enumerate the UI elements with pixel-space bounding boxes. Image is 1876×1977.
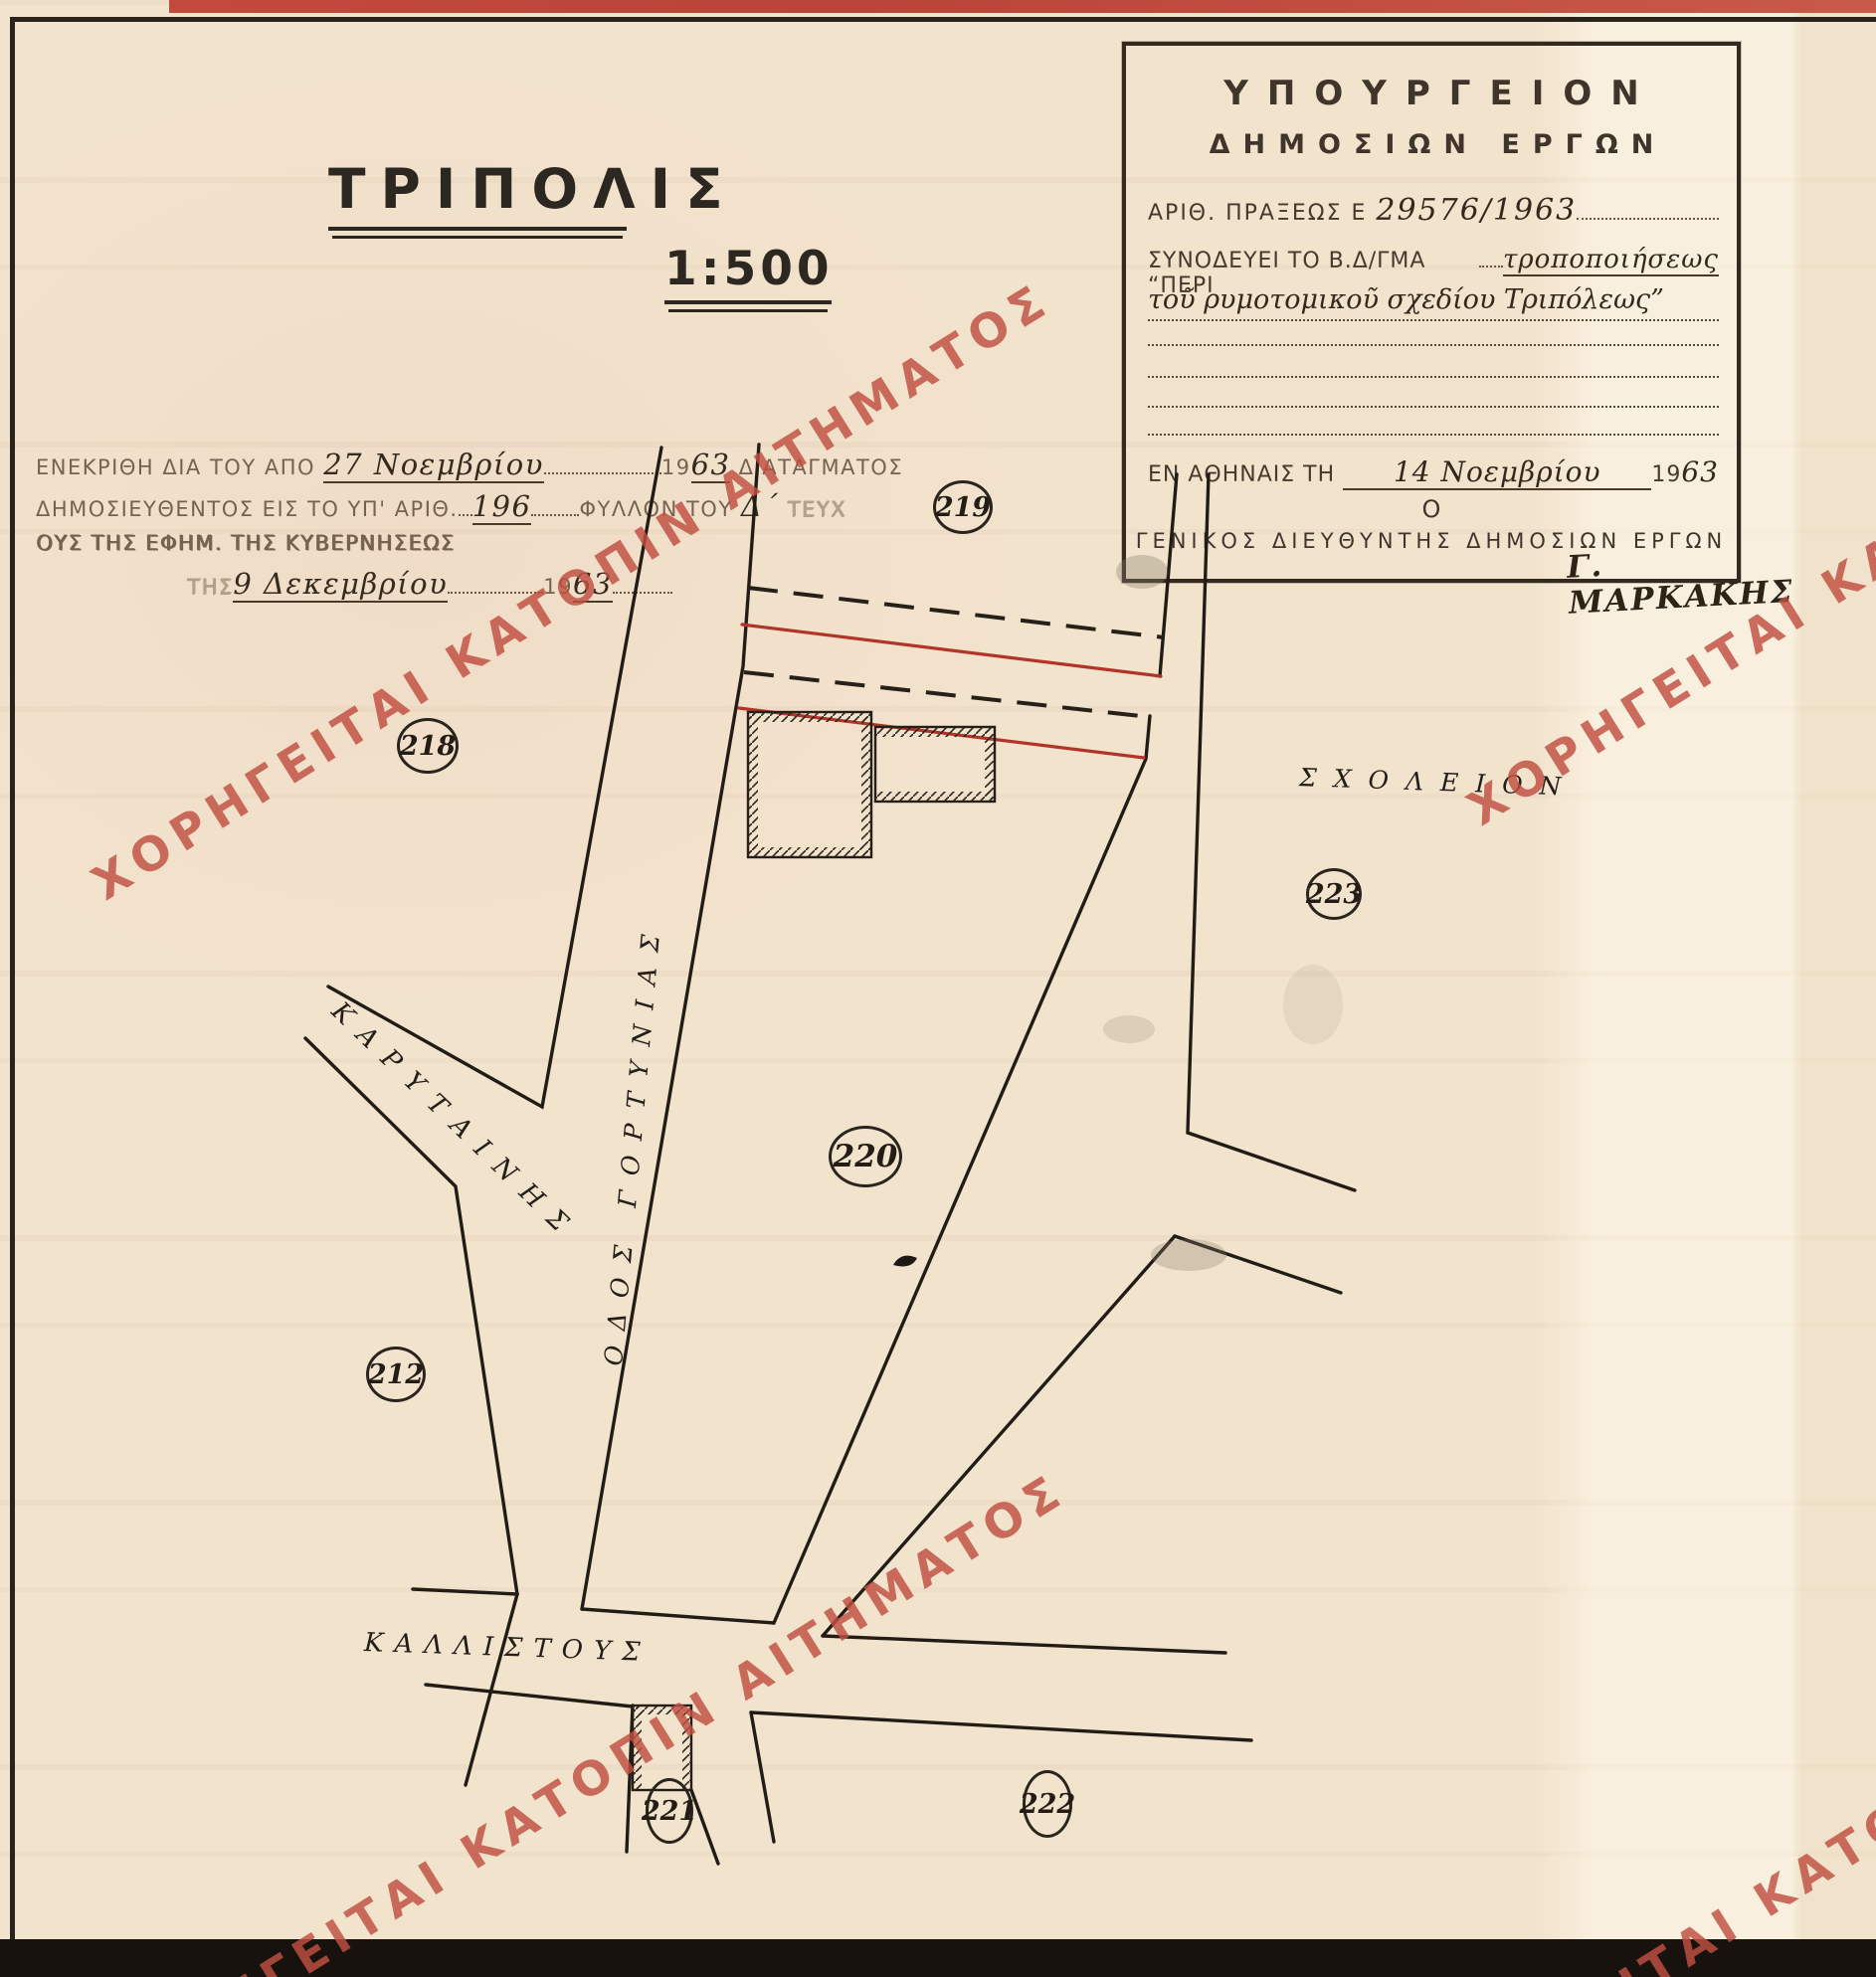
kallistous-upper-edge-left bbox=[413, 1589, 517, 1594]
hatch-band bbox=[875, 792, 995, 802]
gortynias-right-edge bbox=[582, 445, 759, 1609]
block-number: 220 bbox=[834, 1139, 898, 1174]
kallistous-lower-edge-left bbox=[426, 1685, 633, 1707]
block-number: 218 bbox=[400, 731, 456, 762]
hatch-band bbox=[748, 847, 871, 857]
block-number: 221 bbox=[642, 1796, 697, 1827]
dashed-line-block-220 bbox=[744, 672, 1150, 717]
gray-smudge bbox=[1103, 1015, 1155, 1043]
block-circle-219: 219 bbox=[933, 480, 993, 534]
scanned-town-plan-document: ΤΡΙΠΟΛΙΣ 1:500 ΕΝΕΚΡΙΘΗ ΔΙΑ ΤΟΥ ΑΠΟ 27 Ν… bbox=[0, 0, 1876, 1977]
hatch-band bbox=[875, 727, 995, 737]
block-circle-222: 222 bbox=[1023, 1770, 1072, 1838]
gray-smudge bbox=[1283, 965, 1343, 1044]
block-circle-220: 220 bbox=[829, 1126, 902, 1187]
old-alignment-dashed-lines bbox=[744, 588, 1164, 717]
block-circle-221: 221 bbox=[646, 1778, 693, 1844]
kallistous-upper-edge-right bbox=[823, 1636, 1225, 1653]
block-number: 222 bbox=[1020, 1789, 1075, 1820]
gray-smudge bbox=[1116, 555, 1168, 589]
block-number: 219 bbox=[935, 492, 991, 523]
hatch-band bbox=[985, 727, 995, 802]
right-street-right-edge-upper bbox=[1188, 474, 1355, 1190]
kallistous-lower-edge-right bbox=[751, 1712, 1251, 1740]
block-circle-223: 223 bbox=[1306, 868, 1362, 920]
hatch-band bbox=[748, 712, 758, 857]
map-drawing bbox=[0, 0, 1876, 1977]
new-alignment-red-lines bbox=[739, 625, 1161, 758]
block-220-bottom-edge bbox=[582, 1609, 774, 1623]
red-line-block-219 bbox=[742, 625, 1161, 676]
hatch-band bbox=[861, 712, 871, 857]
dashed-line-block-219 bbox=[748, 588, 1164, 637]
block-circle-212: 212 bbox=[366, 1347, 426, 1402]
gray-smudge bbox=[1151, 1239, 1226, 1271]
block-number: 223 bbox=[1306, 879, 1362, 910]
south-street-right-edge bbox=[751, 1712, 774, 1842]
hatch-band bbox=[748, 712, 871, 722]
block-number: 212 bbox=[368, 1359, 424, 1390]
ink-blot bbox=[893, 1256, 917, 1267]
hatched-building-1 bbox=[748, 712, 871, 857]
gortynias-left-edge-lower-karytainis-lower bbox=[305, 1038, 517, 1594]
